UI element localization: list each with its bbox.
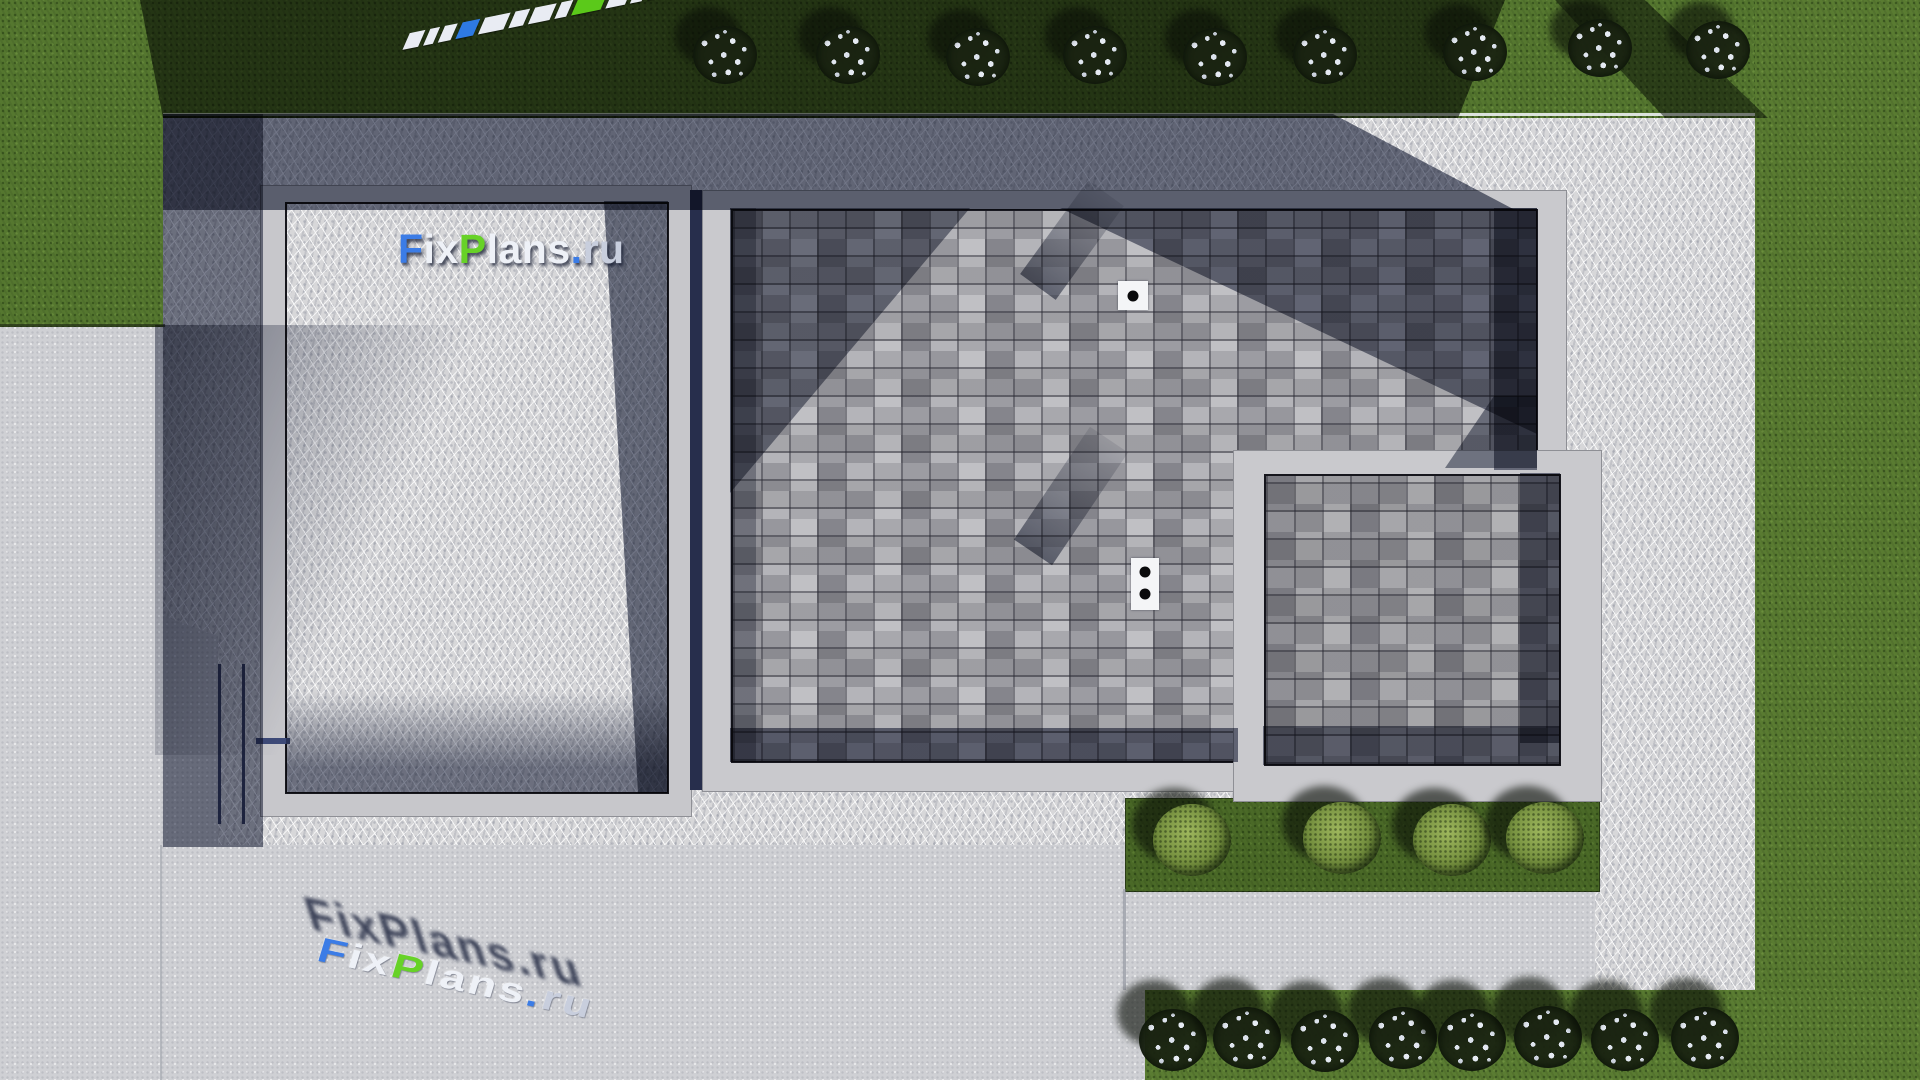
vent-hole	[1140, 589, 1151, 600]
anamorphic-block	[605, 0, 632, 8]
pavement-seam	[1123, 889, 1126, 990]
shrub	[1413, 804, 1491, 876]
secondary-terrace-pavers	[1264, 474, 1561, 766]
anamorphic-block	[630, 0, 649, 3]
flower-bush	[1568, 19, 1632, 77]
garage-roof-surface	[285, 202, 669, 794]
flower-bush	[1686, 21, 1750, 79]
anamorphic-block	[554, 0, 573, 18]
watermark-letter-group: ru	[537, 978, 599, 1026]
shrub	[1153, 804, 1231, 876]
flower-bush	[1183, 28, 1247, 86]
watermark-letter-group: P	[459, 226, 487, 272]
watermark-roof-logo: FixPlans.ru	[398, 226, 708, 278]
secondary-terrace	[1233, 450, 1602, 802]
drainage-channel	[218, 664, 221, 824]
garage-roof-block	[260, 185, 692, 817]
watermark-letter-group: lans	[487, 226, 571, 272]
anamorphic-block	[455, 18, 480, 38]
anamorphic-block	[508, 8, 530, 28]
grass-right-field	[1755, 0, 1920, 1080]
flower-bush	[1671, 1007, 1739, 1069]
watermark-letter-group: .	[571, 226, 583, 272]
site-render-canvas: FixPlans.ru FixPlans.ru FixPlans.ru	[0, 0, 1920, 1080]
grass-left-patch	[0, 0, 163, 327]
flower-bush	[1063, 26, 1127, 84]
gravel-edge-highlight	[163, 113, 1755, 116]
flower-bush	[1591, 1009, 1659, 1071]
watermark-letter-group: F	[398, 226, 424, 272]
anamorphic-block	[528, 3, 557, 24]
roof-vent	[1118, 281, 1148, 310]
watermark-letter-group: ru	[583, 226, 625, 272]
watermark-letter-group: ix	[424, 226, 459, 272]
drainage-channel	[242, 664, 245, 824]
vent-hole	[1128, 290, 1139, 301]
flower-bush	[693, 26, 757, 84]
flower-bush	[946, 28, 1010, 86]
flower-bush	[816, 26, 880, 84]
pavement-seam	[160, 845, 162, 1080]
anamorphic-block	[478, 12, 511, 34]
flower-bush	[1443, 23, 1507, 81]
anamorphic-block	[402, 29, 425, 49]
drainage-channel	[256, 738, 290, 744]
flower-bush	[1293, 26, 1357, 84]
shrub	[1303, 802, 1381, 874]
roof-vent	[1131, 558, 1159, 610]
vent-hole	[1140, 566, 1151, 577]
grass-pavement-edge	[0, 324, 165, 327]
shrub	[1506, 802, 1584, 874]
